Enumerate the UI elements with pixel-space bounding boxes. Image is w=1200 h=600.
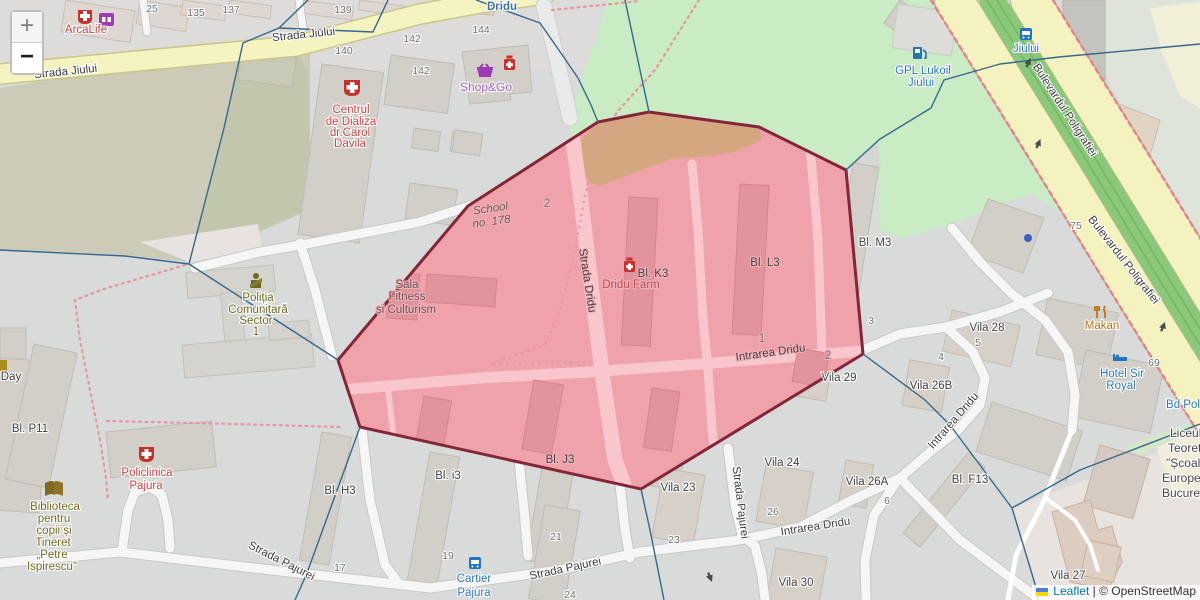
svg-text:Centrul: Centrul	[332, 104, 369, 116]
svg-text:6: 6	[884, 495, 890, 507]
svg-text:139: 139	[334, 4, 352, 16]
svg-text:Tineret: Tineret	[35, 537, 71, 549]
svg-text:copii și: copii și	[36, 525, 71, 537]
svg-text:GPL Lukoil: GPL Lukoil	[895, 65, 951, 77]
svg-text:Bl. J3: Bl. J3	[546, 454, 575, 466]
svg-text:Poliția: Poliția	[242, 292, 274, 304]
svg-text:Bl. F13: Bl. F13	[952, 474, 988, 486]
svg-text:69: 69	[1148, 357, 1160, 369]
svg-text:Liceul: Liceul	[1170, 426, 1200, 440]
svg-text:2: 2	[544, 198, 550, 210]
svg-text:Bl. P11: Bl. P11	[12, 423, 48, 435]
svg-text:Vila 29: Vila 29	[822, 372, 857, 384]
svg-text:4: 4	[938, 351, 944, 363]
svg-text:Bl. L3: Bl. L3	[750, 257, 779, 269]
svg-text:pentru: pentru	[38, 513, 71, 525]
svg-text:24: 24	[564, 589, 576, 600]
svg-text:Bucure: Bucure	[1162, 486, 1200, 500]
svg-text:Vila 28: Vila 28	[970, 322, 1005, 334]
svg-text:3: 3	[868, 315, 874, 327]
svg-text:135: 135	[187, 7, 205, 19]
svg-text:Vila 26A: Vila 26A	[846, 476, 889, 488]
svg-text:137: 137	[222, 4, 240, 16]
svg-text:Shop&Go: Shop&Go	[460, 80, 512, 94]
svg-text:17: 17	[334, 562, 346, 574]
svg-text:Ispirescu": Ispirescu"	[27, 561, 77, 573]
svg-text:Bd Pol: Bd Pol	[1166, 399, 1200, 411]
svg-text:Dridu Farm: Dridu Farm	[602, 279, 660, 291]
svg-text:Jiului: Jiului	[1013, 43, 1039, 55]
svg-text:2: 2	[825, 350, 831, 362]
svg-text:Bl. M3: Bl. M3	[859, 237, 892, 249]
svg-text:1: 1	[759, 333, 765, 345]
svg-text:Pajura: Pajura	[129, 480, 163, 492]
svg-text:și Culturism: și Culturism	[376, 304, 436, 316]
svg-text:75: 75	[1070, 220, 1082, 232]
svg-text:Vila 24: Vila 24	[765, 457, 801, 469]
svg-text:Bl. i3: Bl. i3	[435, 470, 461, 482]
svg-text:Vila 27: Vila 27	[1051, 570, 1086, 582]
svg-text:23: 23	[668, 534, 680, 546]
svg-text:5: 5	[975, 337, 981, 349]
svg-text:Bl. H3: Bl. H3	[324, 485, 355, 497]
svg-text:25: 25	[146, 3, 158, 15]
svg-text:142: 142	[403, 33, 421, 45]
svg-text:Vila 26B: Vila 26B	[910, 380, 953, 392]
svg-text:"Școal: "Școal	[1166, 456, 1200, 470]
svg-text:Sala: Sala	[395, 279, 419, 291]
svg-text:Makan: Makan	[1085, 320, 1120, 332]
svg-text:Davila: Davila	[334, 138, 367, 150]
svg-text:Biblioteca: Biblioteca	[30, 501, 80, 513]
svg-text:Fitness: Fitness	[388, 291, 425, 303]
svg-text:Royal: Royal	[1106, 380, 1135, 392]
svg-text:Hotel Sir: Hotel Sir	[1100, 368, 1144, 380]
svg-text:140: 140	[335, 45, 353, 57]
svg-text:Jiului: Jiului	[908, 77, 934, 89]
svg-text:ArcaLife: ArcaLife	[65, 24, 107, 36]
svg-text:Europe,: Europe,	[1162, 471, 1200, 485]
svg-text:144: 144	[472, 24, 490, 36]
svg-text:Vila 23: Vila 23	[661, 482, 696, 494]
svg-text:142: 142	[412, 65, 430, 77]
svg-text:„Petre: „Petre	[36, 549, 67, 561]
svg-text:Pajura: Pajura	[457, 587, 491, 599]
svg-text:1: 1	[253, 326, 259, 338]
svg-text:26: 26	[767, 506, 779, 518]
svg-text:Vila 30: Vila 30	[779, 577, 814, 589]
svg-text:Policlinica: Policlinica	[121, 467, 173, 479]
svg-text:21: 21	[550, 531, 562, 543]
svg-text:Cartier: Cartier	[457, 573, 492, 585]
svg-text:Dridu: Dridu	[487, 1, 517, 13]
svg-text:Teoreti: Teoreti	[1168, 441, 1200, 455]
svg-text:19: 19	[442, 550, 454, 562]
svg-text:Day: Day	[1, 371, 22, 383]
